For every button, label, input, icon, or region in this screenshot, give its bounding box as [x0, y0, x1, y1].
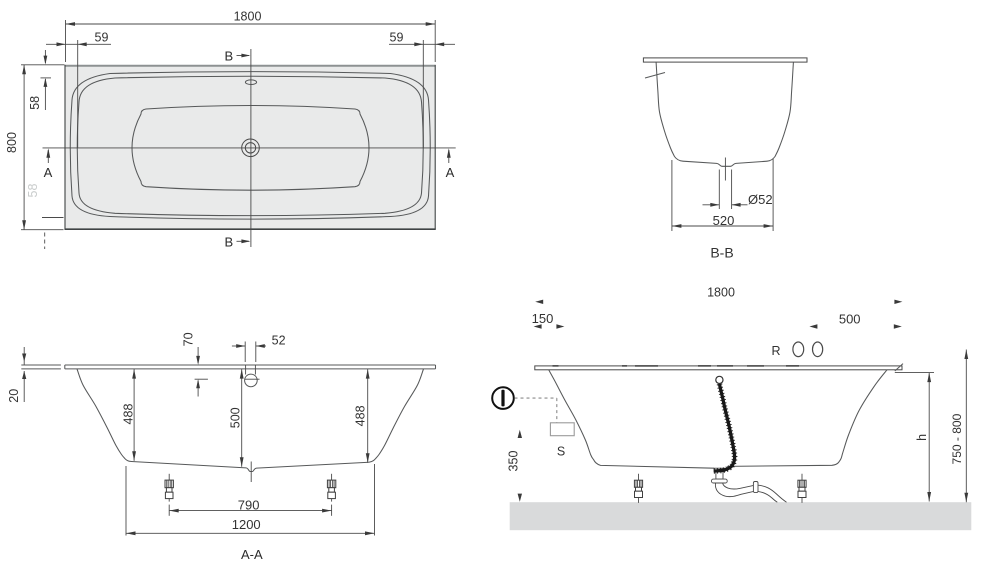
svg-text:h: h	[915, 434, 929, 441]
svg-text:488: 488	[353, 405, 367, 426]
svg-text:350: 350	[506, 451, 520, 472]
svg-text:520: 520	[713, 213, 735, 228]
svg-text:750 - 800: 750 - 800	[950, 413, 964, 464]
svg-text:58: 58	[26, 184, 40, 198]
svg-text:59: 59	[390, 31, 404, 45]
svg-text:Ø52: Ø52	[748, 192, 773, 207]
svg-text:B: B	[224, 234, 233, 249]
svg-text:500: 500	[228, 407, 242, 428]
svg-text:1200: 1200	[232, 517, 261, 532]
svg-text:1800: 1800	[234, 10, 262, 24]
svg-text:20: 20	[7, 389, 21, 403]
svg-text:70: 70	[181, 332, 195, 346]
svg-text:150: 150	[532, 311, 554, 326]
svg-text:488: 488	[122, 404, 136, 425]
svg-text:A: A	[446, 165, 455, 180]
svg-text:1800: 1800	[707, 286, 735, 300]
svg-text:59: 59	[95, 31, 109, 45]
svg-text:S: S	[557, 445, 565, 459]
svg-text:R: R	[771, 344, 780, 358]
svg-text:790: 790	[238, 497, 260, 512]
svg-text:52: 52	[272, 333, 286, 347]
svg-text:58: 58	[28, 96, 42, 110]
svg-text:500: 500	[839, 312, 861, 327]
svg-text:B: B	[224, 49, 233, 64]
svg-text:B-B: B-B	[710, 245, 733, 261]
svg-text:800: 800	[5, 132, 19, 153]
svg-text:A: A	[44, 165, 53, 180]
svg-text:A-A: A-A	[241, 547, 263, 562]
